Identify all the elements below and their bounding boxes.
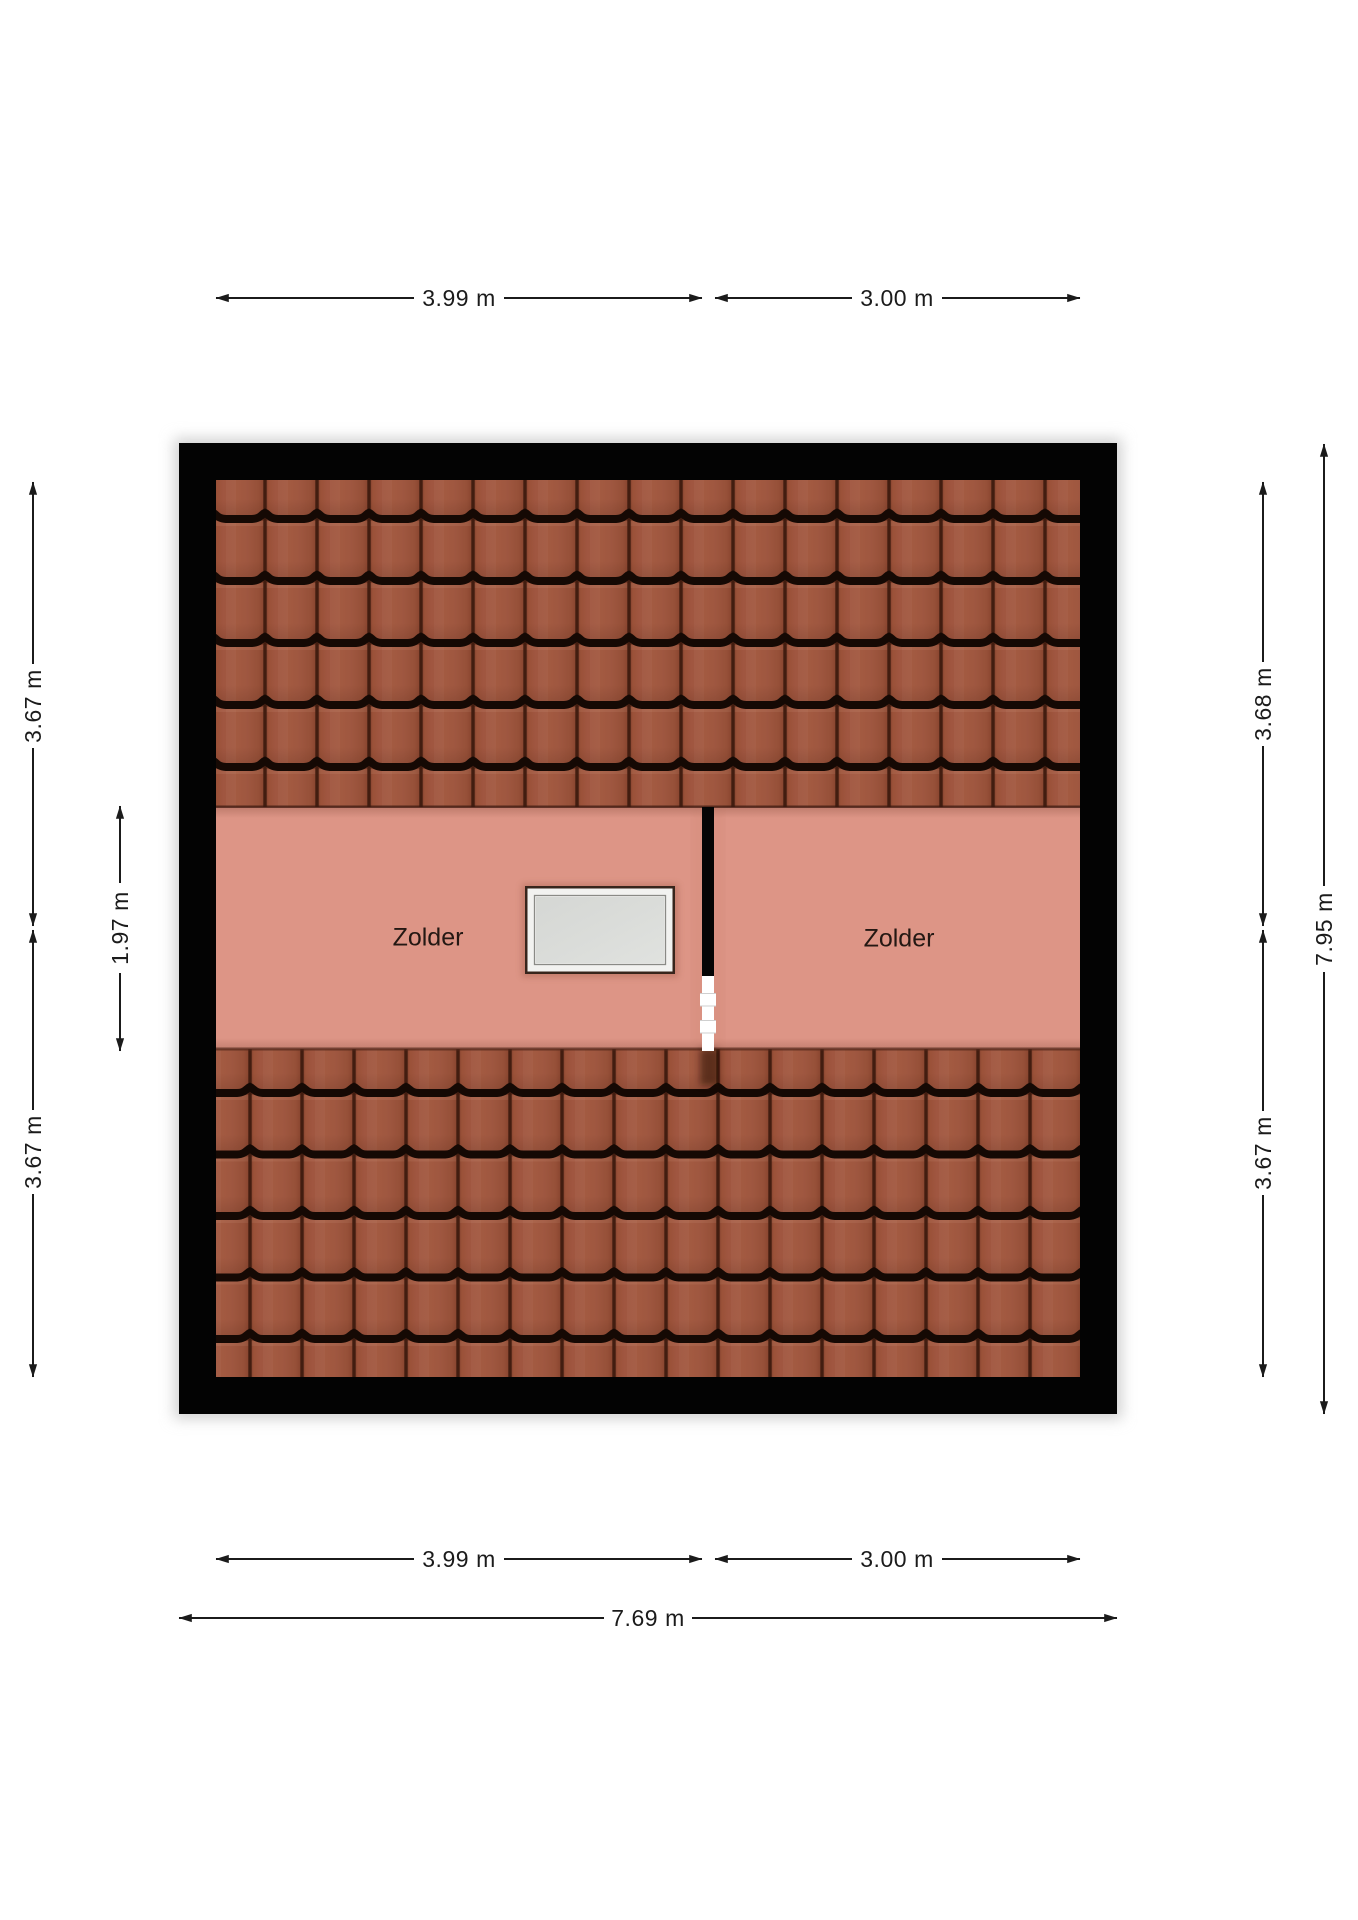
svg-text:3.67 m: 3.67 m (20, 1115, 46, 1189)
svg-text:3.67 m: 3.67 m (20, 669, 46, 743)
svg-text:3.00 m: 3.00 m (860, 1546, 934, 1572)
svg-text:1.97 m: 1.97 m (107, 891, 133, 965)
svg-text:7.69 m: 7.69 m (611, 1605, 685, 1631)
svg-text:Zolder: Zolder (864, 925, 935, 953)
svg-text:Zolder: Zolder (393, 924, 464, 952)
svg-text:3.99 m: 3.99 m (422, 285, 496, 311)
svg-text:3.67 m: 3.67 m (1250, 1116, 1276, 1190)
svg-text:3.00 m: 3.00 m (860, 285, 934, 311)
svg-text:3.99 m: 3.99 m (422, 1546, 496, 1572)
svg-text:7.95 m: 7.95 m (1311, 892, 1337, 966)
svg-text:3.68 m: 3.68 m (1250, 667, 1276, 741)
